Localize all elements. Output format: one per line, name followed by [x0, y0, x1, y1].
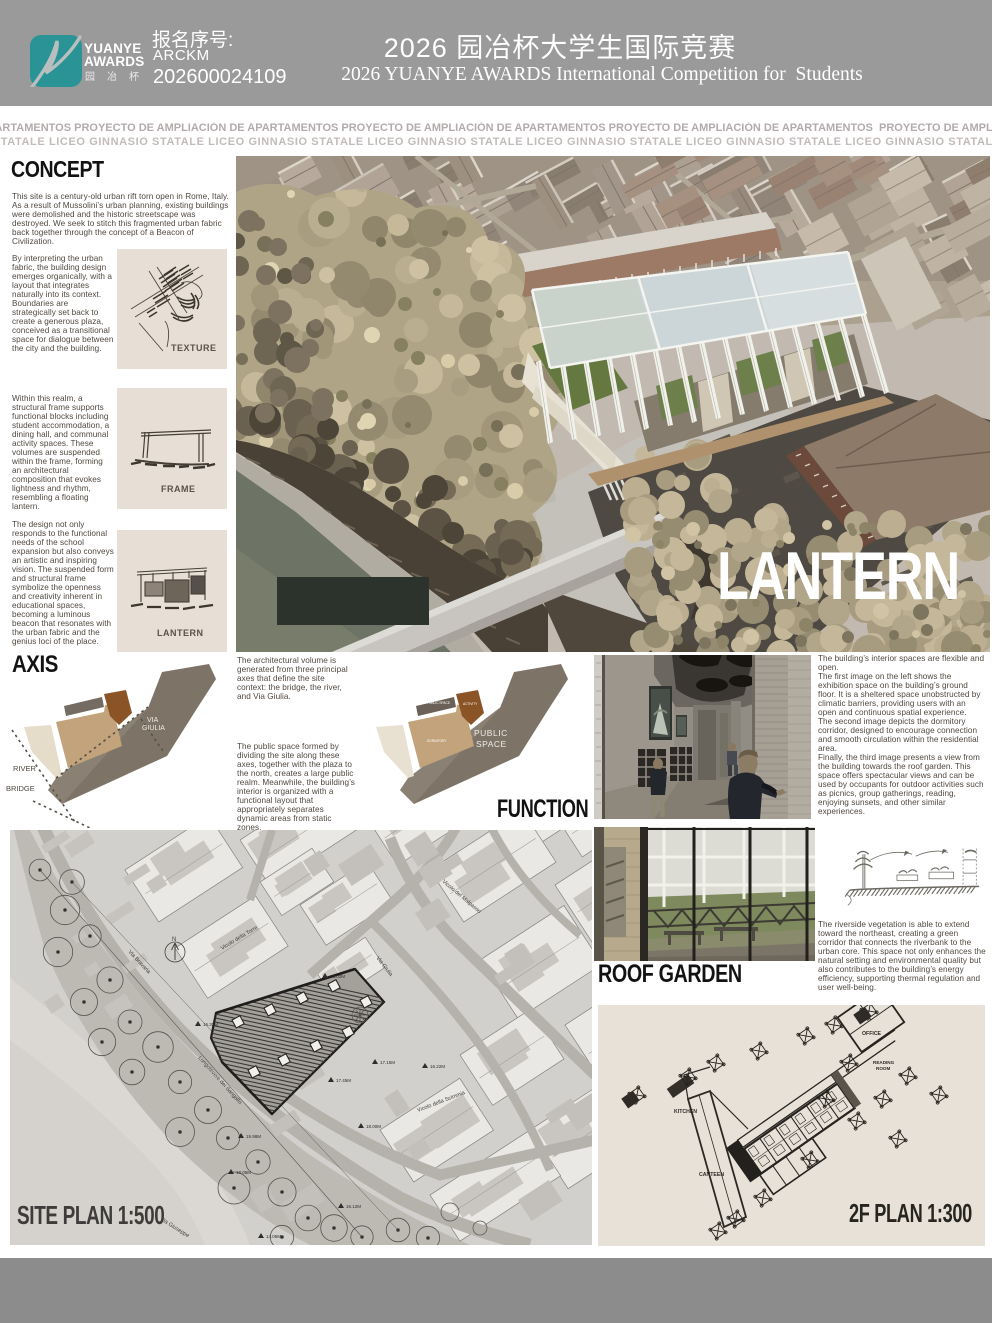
svg-text:CANTEEN: CANTEEN [699, 1172, 724, 1178]
svg-text:19.98M: 19.98M [246, 1134, 261, 1139]
svg-text:BRIDGE: BRIDGE [6, 784, 35, 793]
svg-text:17.45M: 17.45M [336, 1078, 351, 1083]
svg-text:GIULIA: GIULIA [142, 725, 165, 732]
svg-text:16.22M: 16.22M [430, 1064, 445, 1069]
svg-text:PUBLIC SPACE: PUBLIC SPACE [427, 701, 450, 705]
svg-text:ROOM: ROOM [876, 1066, 890, 1071]
svg-text:READING: READING [873, 1060, 895, 1065]
svg-text:DORMITORY: DORMITORY [427, 739, 447, 743]
svg-text:ACTIVITY: ACTIVITY [463, 702, 478, 706]
svg-text:TEXTURE: TEXTURE [171, 343, 217, 353]
svg-text:16.33M: 16.33M [203, 1022, 218, 1027]
svg-text:18.05M: 18.05M [236, 1170, 251, 1175]
svg-text:SPACE: SPACE [476, 739, 507, 749]
svg-text:16.12M: 16.12M [346, 1204, 361, 1209]
svg-text:18.02M: 18.02M [330, 974, 345, 979]
svg-text:KITCHEN: KITCHEN [674, 1109, 697, 1115]
svg-text:LANTERN: LANTERN [157, 628, 204, 638]
svg-text:VIA: VIA [147, 717, 159, 724]
svg-text:PUBLIC: PUBLIC [474, 728, 508, 738]
svg-text:RIVER: RIVER [13, 764, 37, 773]
svg-text:FRAME: FRAME [161, 484, 196, 494]
svg-text:14.05M: 14.05M [266, 1234, 281, 1239]
svg-text:17.15M: 17.15M [380, 1060, 395, 1065]
svg-text:18.00M: 18.00M [366, 1124, 381, 1129]
svg-text:OFFICE: OFFICE [862, 1031, 882, 1037]
svg-text:N: N [172, 937, 176, 943]
